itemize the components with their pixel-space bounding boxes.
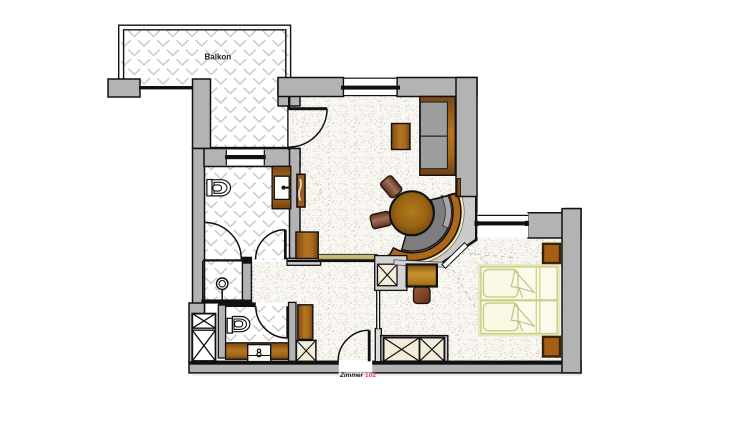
svg-text:Zimmer 102: Zimmer 102 bbox=[339, 372, 376, 379]
svg-text:Balkon: Balkon bbox=[205, 53, 232, 62]
